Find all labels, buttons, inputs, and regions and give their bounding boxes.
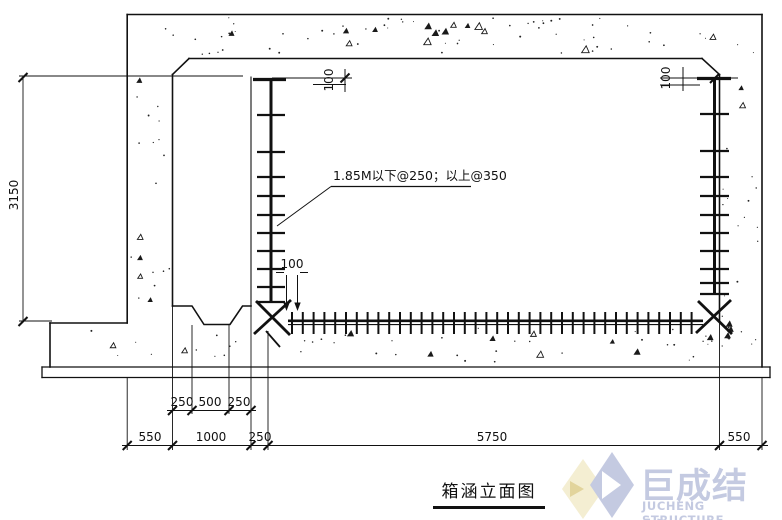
dim-wall-height: 3150 bbox=[8, 175, 20, 215]
dim-top-left-hook: 100 bbox=[323, 65, 335, 95]
rebar-spacing-note: 1.85M以下@250；以上@350 bbox=[333, 170, 507, 183]
jucheng-logo-mark bbox=[562, 452, 634, 519]
annotation-graphics bbox=[272, 67, 738, 311]
rebar bbox=[253, 78, 732, 347]
bedding-layer bbox=[42, 367, 770, 378]
dimension-lines bbox=[19, 76, 768, 450]
logo-name-en: JUCHENG STRUCTURE bbox=[642, 499, 782, 520]
dim-bottom-channel: 1000 bbox=[191, 431, 231, 443]
dim-gutter-right: 250 bbox=[224, 396, 254, 408]
bar-splice-cross-right bbox=[696, 300, 732, 334]
dim-gutter-mid: 500 bbox=[195, 396, 225, 408]
dim-bottom-span: 5750 bbox=[472, 431, 512, 443]
floor-bar-ticks bbox=[292, 312, 692, 334]
dim-floor-start: 100 bbox=[277, 258, 307, 270]
cad-viewer-canvas: 3150 100 100 100 250 500 250 550 1000 25… bbox=[0, 0, 782, 520]
dimension-ticks bbox=[19, 73, 767, 450]
dim-gutter-left: 250 bbox=[167, 396, 197, 408]
drawing-title: 箱涵立面图 bbox=[433, 477, 545, 509]
dim-bottom-right-wall: 550 bbox=[719, 431, 759, 443]
dim-bottom-divider: 250 bbox=[240, 431, 280, 443]
dim-bottom-left-wall: 550 bbox=[130, 431, 170, 443]
dim-top-right-hook: 100 bbox=[660, 63, 672, 93]
